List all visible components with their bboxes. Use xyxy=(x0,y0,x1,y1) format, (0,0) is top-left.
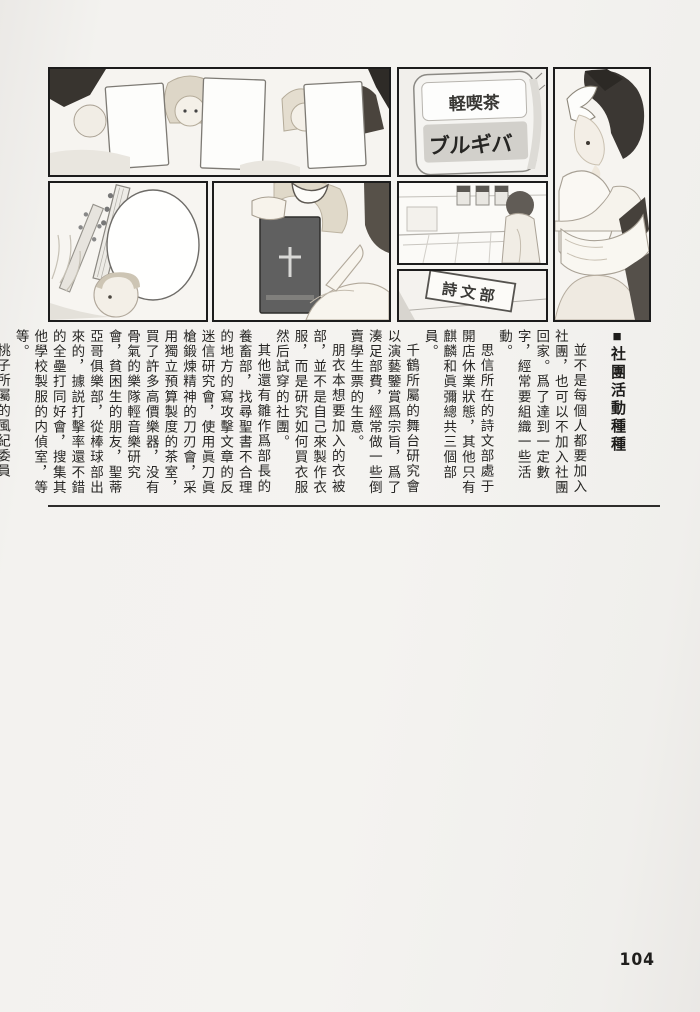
panel-menu-girls xyxy=(48,67,391,177)
article-paragraph: 桃子所屬的風紀委員會，是監督其他社團活動的組織。 xyxy=(0,329,11,507)
panel-poetry-sign: 詩文部 xyxy=(397,269,548,322)
panel-menu-girls-art xyxy=(50,69,389,175)
article-header: ■社團活動種種 xyxy=(607,329,626,507)
manga-page-scan: 軽喫茶 ブルギバ xyxy=(0,0,700,1012)
panel-cafe-interior-art xyxy=(399,183,546,263)
article-paragraph: 並不是每個人都要加入社團，也可以不加入社團回家。爲了達到一定數字，經常要組織一些… xyxy=(494,329,587,507)
article-paragraph: 其他還有雛作爲部長的養畜部，找尋聖書不合理的地方的寫攻擊文章的反迷信研究會，使用… xyxy=(11,329,271,507)
article-title: 社團活動種種 xyxy=(609,346,625,454)
section-divider-rule xyxy=(48,505,660,507)
panel-poetry-sign-art: 詩文部 xyxy=(399,271,546,320)
article-paragraph: 朋衣本想要加入的衣被部，並不是自己來製作衣服，而是研究如何買衣服然后試穿的社團。 xyxy=(271,329,345,507)
article-paragraph: 千鶴所屬的舞台研究會以演藝鑒賞爲宗旨，爲了湊足部費，經常做一些倒賣學生票的生意。 xyxy=(346,329,420,507)
cafe-sign-logo: ブルギバ xyxy=(428,131,513,159)
panel-maid-art xyxy=(555,69,649,320)
cafe-sign-text: 軽喫茶 xyxy=(448,92,501,114)
page-number: 104 xyxy=(620,950,655,970)
panel-guitar-boy xyxy=(48,181,208,322)
panel-cafe-sign: 軽喫茶 ブルギバ xyxy=(397,67,548,177)
panel-guitar-boy-art xyxy=(50,183,206,320)
panel-bible xyxy=(212,181,391,322)
panel-cafe-interior xyxy=(397,181,548,265)
article-paragraph: 思信所在的詩文部處于開店休業狀態，其他只有麒麟和眞彌總共三個部員。 xyxy=(420,329,494,507)
section-square-marker: ■ xyxy=(609,329,625,346)
panel-cafe-sign-art: 軽喫茶 ブルギバ xyxy=(399,69,546,175)
panel-maid xyxy=(553,67,651,322)
panel-bible-art xyxy=(214,183,389,320)
article-text: ■社團活動種種 並不是每個人都要加入社團，也可以不加入社團回家。爲了達到一定數字… xyxy=(48,329,648,507)
